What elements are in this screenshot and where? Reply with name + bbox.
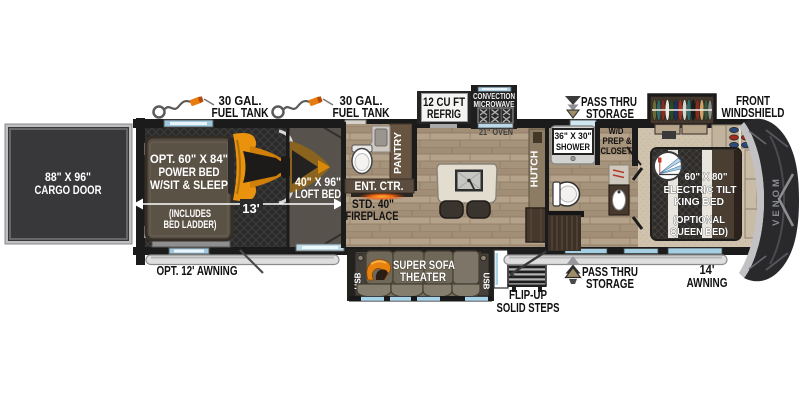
svg-text:13': 13' (242, 201, 260, 216)
svg-text:STORAGE: STORAGE (586, 107, 634, 121)
svg-text:AWNING: AWNING (687, 276, 728, 290)
svg-text:VENOM: VENOM (771, 176, 782, 226)
svg-text:SOLID STEPS: SOLID STEPS (497, 301, 560, 315)
svg-text:60" X 80": 60" X 80" (685, 171, 728, 183)
svg-text:OPT. 12' AWNING: OPT. 12' AWNING (157, 264, 238, 278)
svg-text:HUTCH: HUTCH (529, 151, 541, 188)
svg-text:BED LADDER): BED LADDER) (164, 219, 217, 231)
svg-text:W/SIT & SLEEP: W/SIT & SLEEP (150, 180, 228, 192)
svg-text:KING BED: KING BED (674, 196, 724, 208)
svg-text:ELECTRIC TILT: ELECTRIC TILT (664, 184, 738, 196)
svg-text:SUPER SOFA: SUPER SOFA (393, 260, 455, 272)
svg-text:36" X 30": 36" X 30" (555, 131, 592, 142)
svg-text:12 CU FT: 12 CU FT (423, 97, 465, 109)
svg-text:FIREPLACE: FIREPLACE (346, 209, 399, 223)
svg-text:(OPTIONAL: (OPTIONAL (673, 214, 726, 226)
svg-text:88" X 96": 88" X 96" (45, 170, 91, 184)
svg-text:FLIP-UP: FLIP-UP (509, 288, 547, 302)
svg-text:CARGO DOOR: CARGO DOOR (35, 183, 102, 197)
svg-text:LOFT BED: LOFT BED (295, 189, 341, 201)
svg-text:OPT. 60" X 84": OPT. 60" X 84" (150, 154, 228, 166)
svg-text:POWER BED: POWER BED (159, 167, 220, 179)
svg-text:USB: USB (482, 273, 491, 290)
svg-text:21" OVEN: 21" OVEN (479, 127, 513, 137)
svg-text:PANTRY: PANTRY (392, 132, 404, 174)
svg-text:REFRIG: REFRIG (427, 109, 461, 121)
svg-text:STORAGE: STORAGE (586, 277, 634, 291)
svg-text:ENT. CTR.: ENT. CTR. (355, 181, 404, 193)
svg-text:FUEL TANK: FUEL TANK (212, 106, 269, 120)
svg-text:THEATER: THEATER (400, 272, 447, 284)
svg-text:QUEEN BED): QUEEN BED) (670, 226, 728, 238)
svg-text:14': 14' (700, 263, 715, 277)
svg-text:40" X 96": 40" X 96" (295, 177, 341, 189)
svg-text:SHOWER: SHOWER (556, 142, 590, 153)
svg-text:FUEL TANK: FUEL TANK (333, 106, 390, 120)
svg-text:WINDSHIELD: WINDSHIELD (722, 106, 785, 120)
